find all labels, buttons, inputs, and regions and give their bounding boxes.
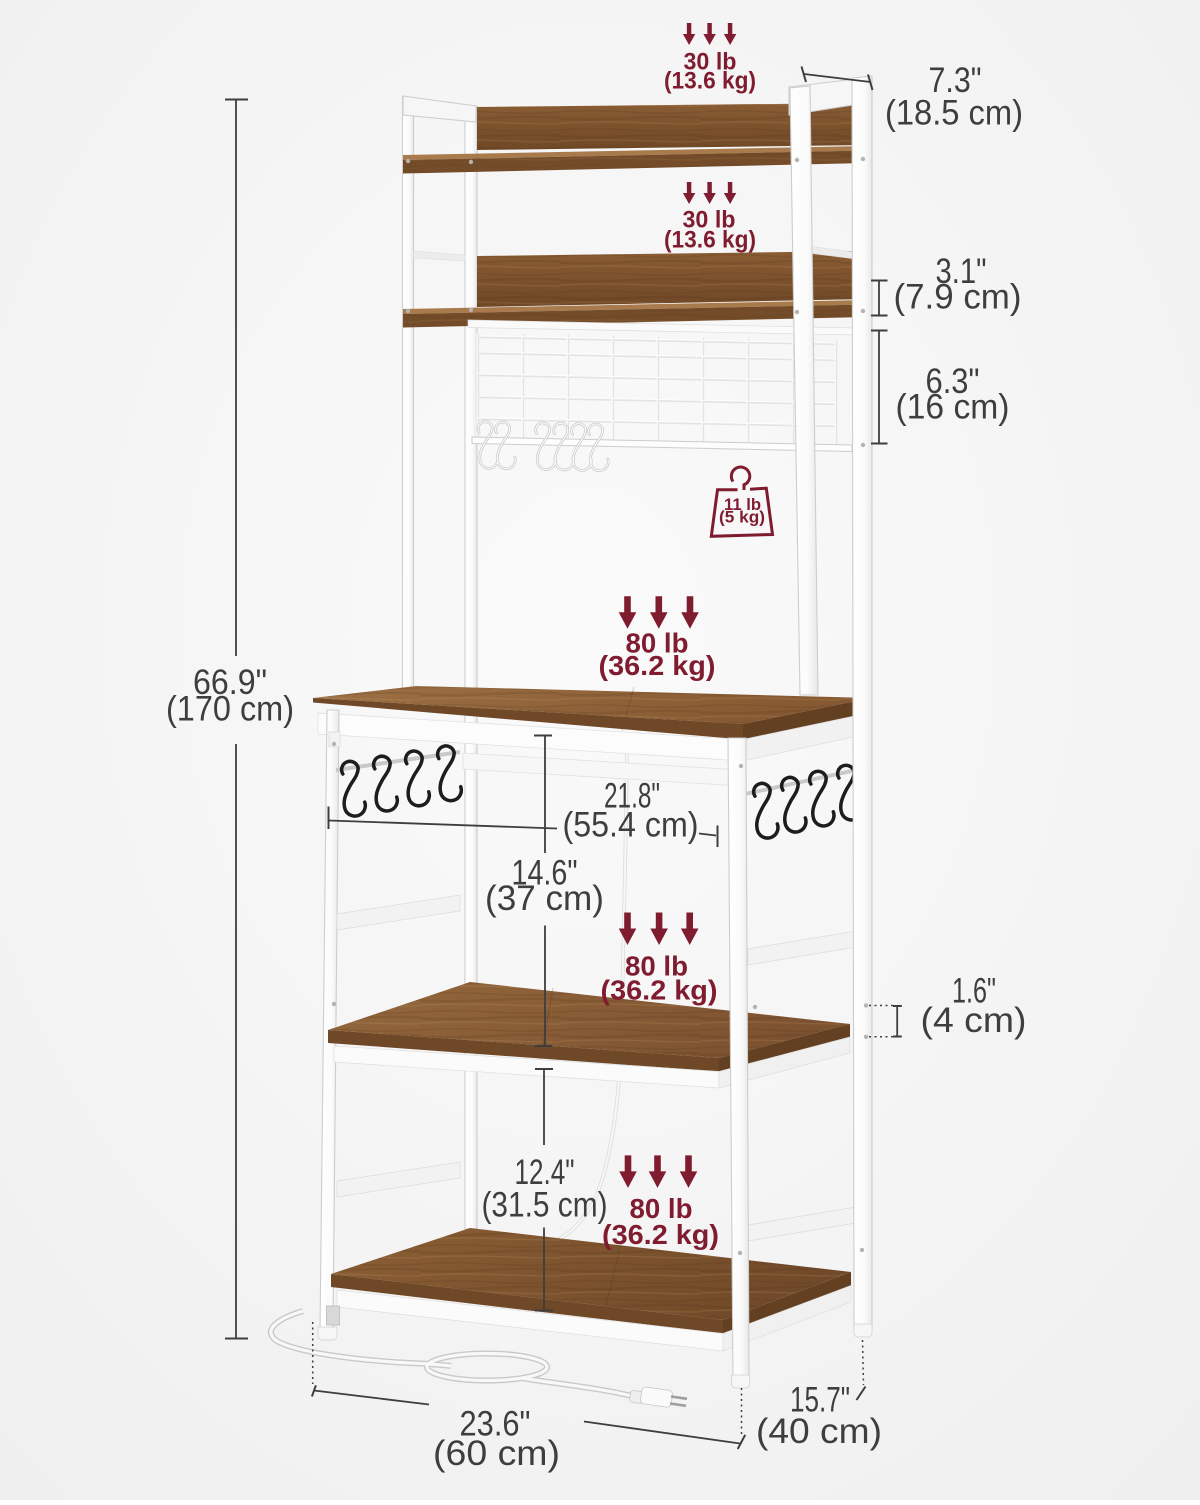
svg-text:(31.5 cm): (31.5 cm) [482, 1185, 608, 1224]
svg-text:(60 cm): (60 cm) [433, 1434, 560, 1473]
svg-text:(13.6 kg): (13.6 kg) [664, 227, 756, 254]
svg-text:(4 cm): (4 cm) [921, 1001, 1027, 1040]
svg-text:(170 cm): (170 cm) [166, 690, 294, 729]
svg-text:(5 kg): (5 kg) [719, 509, 765, 527]
svg-text:(36.2 kg): (36.2 kg) [601, 975, 718, 1006]
svg-text:(37 cm): (37 cm) [485, 879, 604, 918]
svg-text:(55.4 cm): (55.4 cm) [563, 806, 699, 845]
svg-text:(16 cm): (16 cm) [896, 388, 1010, 427]
svg-text:(18.5 cm): (18.5 cm) [885, 94, 1023, 133]
svg-text:(7.9 cm): (7.9 cm) [894, 277, 1022, 316]
svg-text:(40 cm): (40 cm) [756, 1412, 882, 1451]
svg-text:(36.2 kg): (36.2 kg) [602, 1219, 719, 1250]
svg-text:(36.2 kg): (36.2 kg) [599, 650, 716, 681]
svg-text:(13.6 kg): (13.6 kg) [664, 67, 756, 94]
